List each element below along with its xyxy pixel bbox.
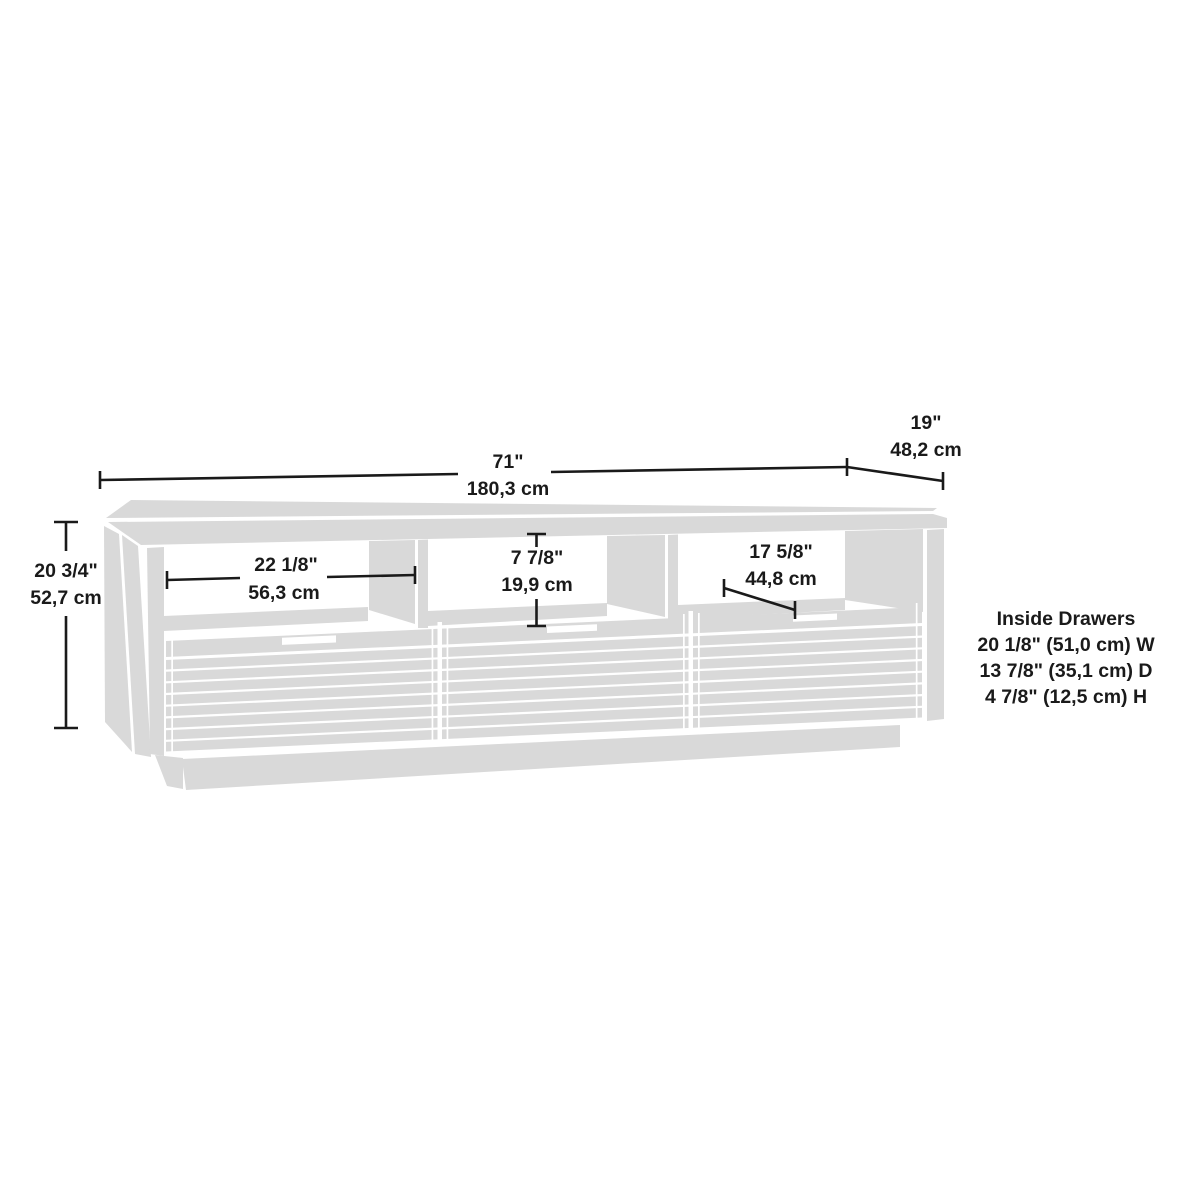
inside-drawers-width: 20 1/8" (51,0 cm) W xyxy=(977,634,1155,656)
depth-inches-label: 19" xyxy=(911,412,942,434)
tv-stand-illustration xyxy=(104,500,947,790)
left-cubby-floor xyxy=(164,607,368,631)
left-panel-inner-face xyxy=(147,547,164,756)
left-cubby-inches-label: 22 1/8" xyxy=(254,554,317,576)
center-cubby-inches-label: 7 7/8" xyxy=(511,547,564,569)
depth-dimension-line xyxy=(847,467,943,490)
base-left-end-cap xyxy=(155,755,183,789)
width-inches-label: 71" xyxy=(493,451,524,473)
inside-drawers-info: Inside Drawers 20 1/8" (51,0 cm) W 13 7/… xyxy=(977,608,1155,708)
right-cubby-inches-label: 17 5/8" xyxy=(749,541,812,563)
left-cubby-cm-label: 56,3 cm xyxy=(248,582,320,604)
divider-1-front-edge xyxy=(418,540,428,629)
right-cubby-cm-label: 44,8 cm xyxy=(745,568,817,590)
inside-drawers-height: 4 7/8" (12,5 cm) H xyxy=(985,686,1147,708)
width-cm-label: 180,3 cm xyxy=(467,478,549,500)
divider-2-inner-face xyxy=(607,535,665,617)
tv-stand-dimension-drawing: 71" 180,3 cm 19" 48,2 cm 20 3/4" 52,7 cm… xyxy=(0,0,1200,1200)
divider-1-inner-face xyxy=(369,540,415,624)
depth-cm-label: 48,2 cm xyxy=(890,439,962,461)
center-cubby-cm-label: 19,9 cm xyxy=(501,574,573,596)
base-plinth xyxy=(182,725,900,790)
divider-2-front-edge xyxy=(668,535,678,621)
inside-drawers-depth: 13 7/8" (35,1 cm) D xyxy=(980,660,1153,682)
height-cm-label: 52,7 cm xyxy=(30,587,102,609)
height-inches-label: 20 3/4" xyxy=(34,560,97,582)
right-panel-front-edge xyxy=(927,529,944,721)
height-dimension-line xyxy=(54,522,78,728)
dimension-diagram: 71" 180,3 cm 19" 48,2 cm 20 3/4" 52,7 cm… xyxy=(0,0,1200,1200)
top-board-front-edge xyxy=(108,514,947,545)
right-panel-inner-face xyxy=(845,529,923,612)
inside-drawers-title: Inside Drawers xyxy=(997,608,1136,630)
